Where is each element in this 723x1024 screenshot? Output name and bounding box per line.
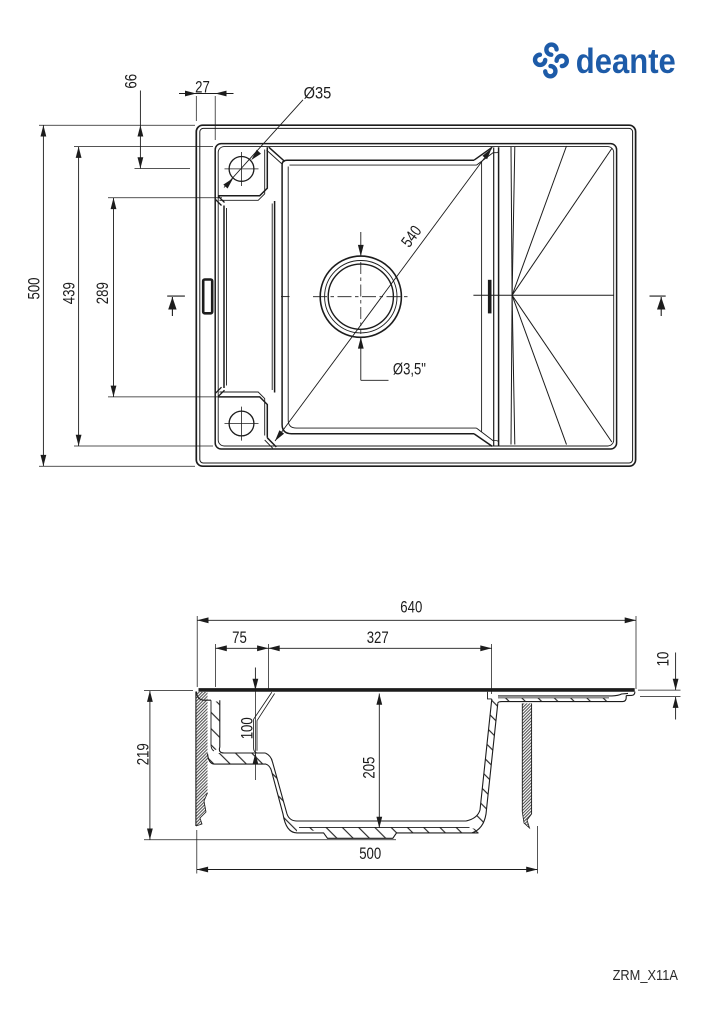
svg-text:289: 289	[94, 282, 112, 304]
svg-text:27: 27	[195, 78, 210, 96]
svg-text:deante: deante	[576, 42, 676, 81]
svg-text:75: 75	[232, 629, 247, 647]
svg-text:327: 327	[367, 629, 389, 647]
svg-text:100: 100	[238, 717, 256, 739]
svg-text:205: 205	[360, 757, 378, 779]
svg-text:66: 66	[123, 74, 141, 89]
svg-text:500: 500	[26, 278, 44, 300]
svg-text:ZRM_X11A: ZRM_X11A	[613, 968, 679, 984]
svg-text:219: 219	[134, 743, 152, 765]
svg-text:Ø35: Ø35	[304, 85, 332, 103]
svg-text:Ø3,5": Ø3,5"	[393, 361, 426, 379]
svg-text:10: 10	[654, 652, 672, 667]
svg-text:439: 439	[60, 282, 78, 304]
svg-text:640: 640	[400, 598, 422, 616]
svg-text:500: 500	[359, 845, 381, 863]
svg-text:540: 540	[398, 222, 426, 250]
